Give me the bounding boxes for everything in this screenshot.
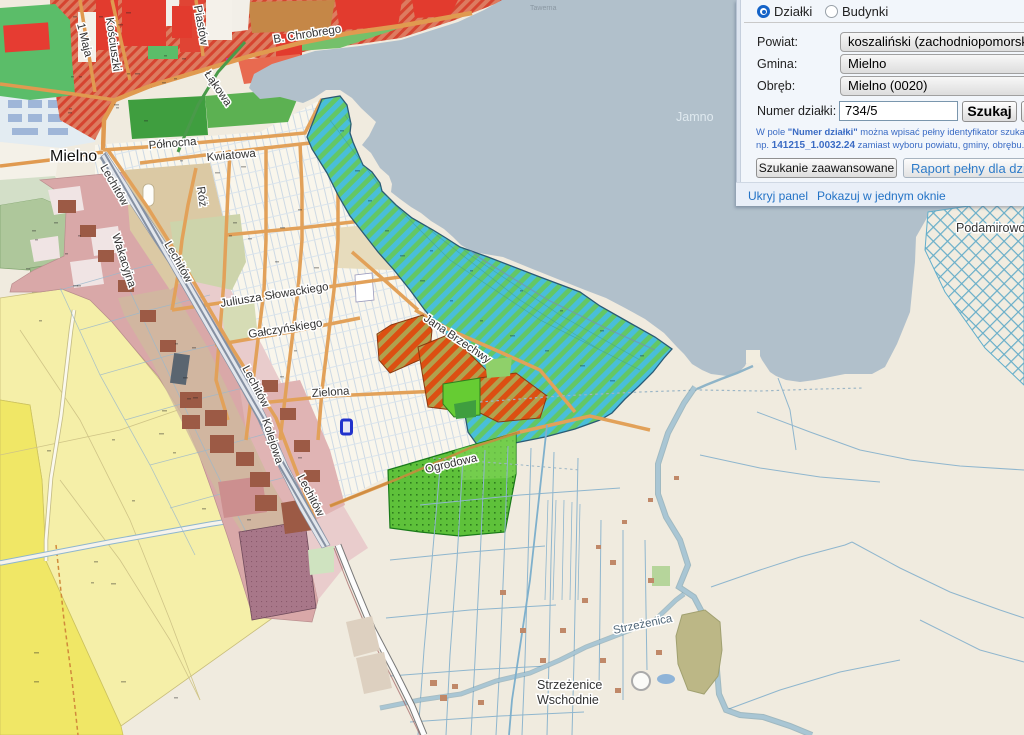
svg-text:Podamirowo: Podamirowo [956, 221, 1024, 235]
svg-text:Tawerna: Tawerna [530, 5, 557, 12]
svg-text:Jamno: Jamno [676, 110, 714, 124]
svg-text:Wschodnie: Wschodnie [537, 693, 599, 707]
svg-text:Mielno: Mielno [50, 148, 97, 165]
svg-text:Strzeżenice: Strzeżenice [537, 678, 602, 692]
